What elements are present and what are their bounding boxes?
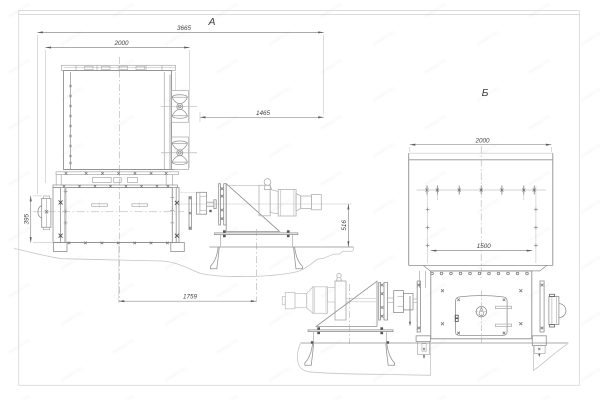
svg-text:3665: 3665 xyxy=(177,25,192,32)
svg-text:1759: 1759 xyxy=(183,294,198,301)
svg-text:2000: 2000 xyxy=(474,137,490,144)
svg-text:1500: 1500 xyxy=(477,243,492,250)
svg-text:А: А xyxy=(207,16,215,28)
svg-text:2000: 2000 xyxy=(113,40,129,47)
svg-text:1465: 1465 xyxy=(256,110,271,117)
svg-text:Б: Б xyxy=(482,87,489,99)
svg-text:516: 516 xyxy=(341,220,348,231)
svg-text:395: 395 xyxy=(23,214,30,225)
